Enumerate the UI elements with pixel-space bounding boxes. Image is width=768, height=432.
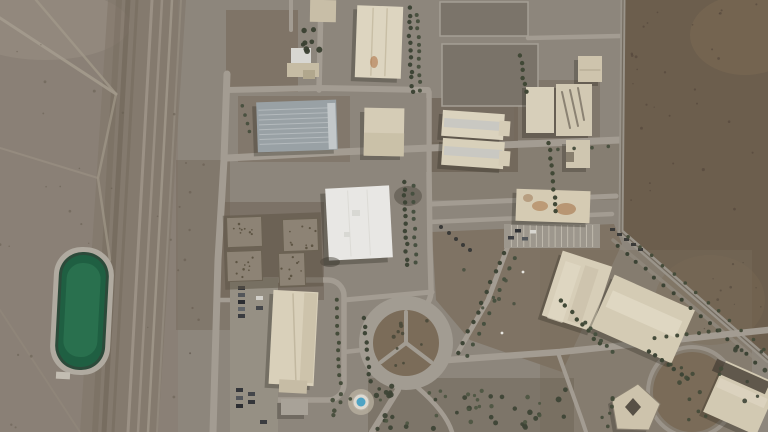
tree-row-fence xyxy=(652,276,656,280)
forest xyxy=(384,419,388,423)
tree-row xyxy=(410,70,414,74)
desert-shrub xyxy=(189,352,191,354)
tree xyxy=(697,410,701,414)
tree-row-fence xyxy=(694,291,698,295)
vehicle xyxy=(631,243,636,246)
forest xyxy=(404,424,409,429)
tree xyxy=(397,330,400,333)
tree-row xyxy=(572,147,576,151)
tree-row xyxy=(417,49,421,53)
tree-row xyxy=(471,343,475,347)
vehicle xyxy=(248,392,255,396)
forest xyxy=(562,415,566,419)
forest xyxy=(375,427,379,431)
forest xyxy=(374,393,379,398)
tree-row xyxy=(563,303,567,307)
tree xyxy=(606,425,610,429)
tree-row xyxy=(548,156,552,160)
tree-row xyxy=(559,298,563,302)
desert-speckle xyxy=(15,426,17,428)
tree-row-fence xyxy=(689,306,693,310)
roof-vent-dots xyxy=(314,230,316,232)
forest xyxy=(476,398,480,402)
forest xyxy=(474,406,478,410)
reservoir-water-light xyxy=(63,262,102,358)
tree-row xyxy=(246,122,250,126)
tree-row xyxy=(487,311,491,315)
tree xyxy=(669,363,673,367)
tree xyxy=(688,397,692,401)
tree-row xyxy=(416,19,420,23)
desert-speckle xyxy=(10,424,12,426)
forest xyxy=(444,395,447,398)
roof-vent-dots xyxy=(244,264,246,266)
vehicle xyxy=(508,236,514,240)
tree-row xyxy=(485,290,489,294)
desert-speckle xyxy=(635,55,638,58)
tree xyxy=(481,306,484,309)
desert-speckle xyxy=(630,199,632,201)
tree-row xyxy=(456,351,460,355)
tree-row xyxy=(335,315,339,319)
forest xyxy=(473,394,476,397)
roof-vent-dots xyxy=(309,227,311,229)
forest xyxy=(388,425,393,430)
tree-row xyxy=(553,209,557,213)
roof-vent-dots xyxy=(248,269,250,271)
tree-row xyxy=(243,113,247,117)
tree xyxy=(392,335,396,339)
forest xyxy=(489,415,494,420)
roof-vent-dots xyxy=(236,273,238,275)
tree-row-fence xyxy=(616,244,620,248)
tree-row xyxy=(593,332,597,336)
block-building xyxy=(226,216,262,247)
tree-row xyxy=(241,104,245,108)
roof-vent-dots xyxy=(311,244,314,247)
desert-speckle xyxy=(636,69,638,71)
vehicle xyxy=(238,293,245,297)
desert-speckle xyxy=(717,57,720,60)
forest xyxy=(462,395,467,400)
tree-shadow xyxy=(394,186,422,206)
forest xyxy=(500,395,505,400)
forest xyxy=(533,416,538,421)
vehicle xyxy=(617,233,622,236)
forest xyxy=(435,414,439,418)
tree-row xyxy=(411,192,415,196)
tree-row xyxy=(653,353,657,357)
forest xyxy=(538,402,541,405)
desert-speckle xyxy=(16,51,17,52)
tree-row xyxy=(494,269,498,273)
tree-row xyxy=(589,326,593,330)
forest xyxy=(388,390,392,394)
forest xyxy=(377,387,381,391)
tree-row xyxy=(417,65,421,69)
tree-row xyxy=(611,350,615,354)
tree xyxy=(462,268,466,272)
tree-row xyxy=(408,41,412,45)
roof-vent-dots xyxy=(249,265,251,267)
tree-row xyxy=(697,331,701,335)
tree-row xyxy=(717,328,721,332)
forest xyxy=(466,392,470,396)
desert-speckle xyxy=(45,186,47,188)
satellite-scene xyxy=(0,0,768,432)
tree-row xyxy=(411,90,415,94)
tree-row xyxy=(412,210,416,214)
tree-row xyxy=(493,299,497,303)
tree-row xyxy=(403,249,407,253)
vehicle xyxy=(468,248,472,252)
tree-row xyxy=(513,256,517,260)
parking-lot xyxy=(504,224,600,248)
tree-row-fence xyxy=(708,321,712,325)
tree-row xyxy=(409,55,413,59)
tree-row xyxy=(680,372,684,376)
roof-vent-dots xyxy=(239,228,241,230)
tree-row xyxy=(335,332,339,336)
tree-row xyxy=(482,322,486,326)
tree-row-fence xyxy=(680,298,684,302)
tree xyxy=(733,348,738,353)
desert-speckle xyxy=(704,328,705,329)
tree xyxy=(497,297,501,301)
tree-row xyxy=(550,171,554,175)
desert-speckle xyxy=(755,3,757,5)
tree-row xyxy=(417,35,421,39)
tree-row xyxy=(403,200,407,204)
tree xyxy=(608,412,611,415)
desert-speckle xyxy=(712,278,713,279)
desert-speckle xyxy=(643,26,645,28)
tree-row xyxy=(607,145,611,149)
tree-row xyxy=(407,20,411,24)
tree-row xyxy=(404,236,408,240)
roof-vent-dots xyxy=(305,247,308,250)
desert-speckle xyxy=(733,208,736,211)
roof-stain xyxy=(556,203,576,215)
tree xyxy=(742,399,747,404)
forest xyxy=(556,396,562,402)
tree xyxy=(677,380,682,385)
desert-speckle xyxy=(742,262,743,263)
forest xyxy=(455,411,459,415)
desert-speckle xyxy=(728,120,731,123)
roof-vent-dots xyxy=(233,228,235,230)
tree-row-fence xyxy=(661,283,665,287)
tree-row-fence xyxy=(707,301,711,305)
forest xyxy=(382,413,387,418)
desert-speckle xyxy=(721,9,723,11)
tree xyxy=(611,397,615,401)
tree-row xyxy=(520,61,524,65)
tree-row xyxy=(366,356,370,360)
forest xyxy=(427,391,431,395)
roof-vent-dots xyxy=(249,231,251,233)
tree-row xyxy=(403,207,407,211)
tree-row xyxy=(407,34,411,38)
tree-row xyxy=(363,331,367,335)
tree-row xyxy=(590,146,594,150)
desert-speckle xyxy=(17,354,19,356)
tree-cluster xyxy=(316,47,322,53)
tree xyxy=(745,380,748,383)
roof-vent-dots xyxy=(301,225,303,227)
forest xyxy=(489,404,493,408)
tree-row xyxy=(403,229,407,233)
tree-row xyxy=(476,310,480,314)
tree-row xyxy=(647,349,651,353)
tree-row-fence xyxy=(626,235,630,239)
forest xyxy=(478,405,481,408)
block-building xyxy=(226,250,262,281)
tree-row xyxy=(408,48,412,52)
building-small-top xyxy=(310,0,336,22)
tree-cluster xyxy=(304,48,310,54)
desert-speckle xyxy=(173,113,176,116)
desert-speckle xyxy=(664,71,666,73)
tree-row xyxy=(408,5,412,9)
tree-row xyxy=(405,242,409,246)
desert-speckle xyxy=(649,182,651,184)
tree-row xyxy=(336,348,340,352)
tree-row xyxy=(479,301,483,305)
desert-speckle xyxy=(669,115,671,117)
tree-row xyxy=(339,381,343,385)
tree xyxy=(331,413,335,417)
tree-row xyxy=(367,365,371,369)
tree-row xyxy=(417,73,421,77)
tree xyxy=(680,366,683,369)
desert-speckle xyxy=(692,24,694,26)
vehicle xyxy=(236,396,243,400)
roof-vent-dots xyxy=(300,270,302,272)
desert-speckle xyxy=(80,223,82,225)
roof-vent-dots xyxy=(296,262,298,264)
tree-row-fence xyxy=(644,267,648,271)
tree-row xyxy=(415,13,419,17)
tree-row xyxy=(523,82,527,86)
tree xyxy=(425,319,429,323)
tree-row xyxy=(605,344,609,348)
tree-row xyxy=(404,222,408,226)
tree-row-fence xyxy=(699,314,703,318)
tree xyxy=(756,395,759,398)
tree xyxy=(402,362,405,365)
tree-row xyxy=(405,263,409,267)
tree-row xyxy=(403,188,407,192)
tree-row xyxy=(335,298,339,302)
tree-row xyxy=(337,341,341,345)
tree-row xyxy=(415,26,419,30)
tree-row-fence xyxy=(752,338,756,342)
tree xyxy=(740,348,744,352)
desert-speckle xyxy=(716,298,719,301)
desert-speckle xyxy=(8,245,10,247)
roof-stain xyxy=(523,194,533,202)
forest xyxy=(527,410,532,415)
desert-speckle xyxy=(631,54,634,57)
vehicle xyxy=(447,231,451,235)
tree-row xyxy=(369,379,373,383)
vehicle xyxy=(260,420,267,424)
tree xyxy=(339,400,343,404)
corner-shadow xyxy=(320,257,340,267)
tree-row xyxy=(412,235,416,239)
tree-row xyxy=(707,330,711,334)
tree-row xyxy=(418,89,422,93)
tree xyxy=(339,392,343,396)
tree-row xyxy=(498,261,502,265)
tree-row xyxy=(414,261,418,265)
roof-stain xyxy=(532,201,548,211)
desert-speckle xyxy=(734,304,735,305)
tree-row-fence xyxy=(650,254,654,258)
road xyxy=(227,88,428,90)
tree-row xyxy=(417,43,421,47)
roof-vent-dots xyxy=(305,244,307,246)
forest xyxy=(431,426,436,431)
desert-speckle xyxy=(645,104,647,106)
tree-row-fence xyxy=(638,245,642,249)
tree-row xyxy=(553,202,557,206)
white-hall xyxy=(325,185,393,260)
roof-stain xyxy=(370,56,378,68)
tree xyxy=(698,390,702,394)
desert-speckle xyxy=(702,168,705,171)
tree-cluster xyxy=(311,27,316,32)
vehicle-light xyxy=(522,271,525,274)
tree-row xyxy=(521,68,525,72)
tree xyxy=(600,416,603,419)
vehicle xyxy=(248,400,255,404)
tree-row xyxy=(365,340,369,344)
tree xyxy=(396,347,399,350)
roof-vent-dots xyxy=(290,275,293,278)
vehicle xyxy=(238,314,245,318)
roof-vent-dots xyxy=(241,229,243,231)
tree-row xyxy=(409,84,413,88)
desert-speckle xyxy=(69,210,72,213)
tree-row xyxy=(336,357,340,361)
tree-row-fence xyxy=(634,260,638,264)
vehicle xyxy=(236,388,243,392)
vehicle xyxy=(238,307,245,311)
tree xyxy=(348,397,352,401)
roof-vent-dots xyxy=(289,231,291,233)
tree-row-fence xyxy=(673,272,677,276)
tree-row xyxy=(466,329,470,333)
tree-row xyxy=(362,316,366,320)
desert-speckle xyxy=(640,127,643,130)
tree-row xyxy=(248,130,252,134)
forest xyxy=(523,420,527,424)
tree-cluster xyxy=(301,43,305,47)
desert-speckle xyxy=(696,103,698,105)
tree-row xyxy=(548,148,552,152)
desert-speckle xyxy=(147,327,148,328)
road xyxy=(344,350,362,352)
building-cream-pair-lower xyxy=(364,133,404,157)
vehicle xyxy=(256,296,263,300)
vehicle xyxy=(515,229,521,233)
tree xyxy=(399,322,403,326)
roof-vent-dots xyxy=(244,228,246,230)
desert-speckle xyxy=(732,263,734,265)
tree xyxy=(763,368,768,373)
roof-vent-dots xyxy=(291,243,293,245)
desert-speckle xyxy=(122,112,124,114)
desert-speckle xyxy=(79,168,81,170)
roof-vent-dots xyxy=(235,261,237,263)
tree-row xyxy=(685,332,689,336)
vehicle xyxy=(454,237,458,241)
warehouse-north xyxy=(355,5,403,79)
roof-vent-dots xyxy=(288,278,290,280)
roof-vent-dots xyxy=(242,268,245,271)
stained-building xyxy=(515,189,590,224)
tree-row-fence xyxy=(744,352,748,356)
tree-row xyxy=(502,251,506,255)
tree-row xyxy=(414,253,418,257)
reservoir-structure xyxy=(56,372,70,380)
tree xyxy=(401,332,404,335)
tree-row xyxy=(465,354,469,358)
tree-row xyxy=(418,80,422,84)
forest xyxy=(525,395,530,400)
desert-speckle xyxy=(719,13,720,14)
tree-row xyxy=(402,193,406,197)
tree xyxy=(504,279,508,283)
desert-speckle xyxy=(93,90,96,93)
vehicle xyxy=(256,306,263,310)
tree-row xyxy=(488,280,492,284)
forest xyxy=(390,415,394,419)
roof-vent-dots xyxy=(251,233,253,235)
forest xyxy=(389,384,394,389)
vehicle-light xyxy=(501,332,504,335)
forest xyxy=(488,394,493,399)
desert-speckle xyxy=(30,355,33,358)
vehicle xyxy=(236,404,243,408)
tree-row-fence xyxy=(739,329,743,333)
roof-vent-dots xyxy=(280,267,282,269)
tree-row xyxy=(592,337,596,341)
block-building xyxy=(282,218,318,251)
tree-row-fence xyxy=(625,252,629,256)
tree-row xyxy=(520,76,524,80)
tree-row xyxy=(408,62,412,66)
forest xyxy=(493,420,498,425)
roof-unit xyxy=(352,210,360,216)
tree-row xyxy=(412,184,416,188)
tree xyxy=(512,302,515,305)
tree-row xyxy=(337,373,341,377)
tree xyxy=(687,418,691,422)
dirt-patch xyxy=(226,10,298,92)
vehicle xyxy=(610,228,615,231)
tree-row xyxy=(413,243,417,247)
tree-row xyxy=(471,320,475,324)
annex xyxy=(498,151,510,167)
tree xyxy=(719,366,724,371)
tree-row xyxy=(570,310,574,314)
tree-row xyxy=(551,187,555,191)
desert-speckle xyxy=(647,22,649,24)
complex-east-left xyxy=(526,87,554,133)
